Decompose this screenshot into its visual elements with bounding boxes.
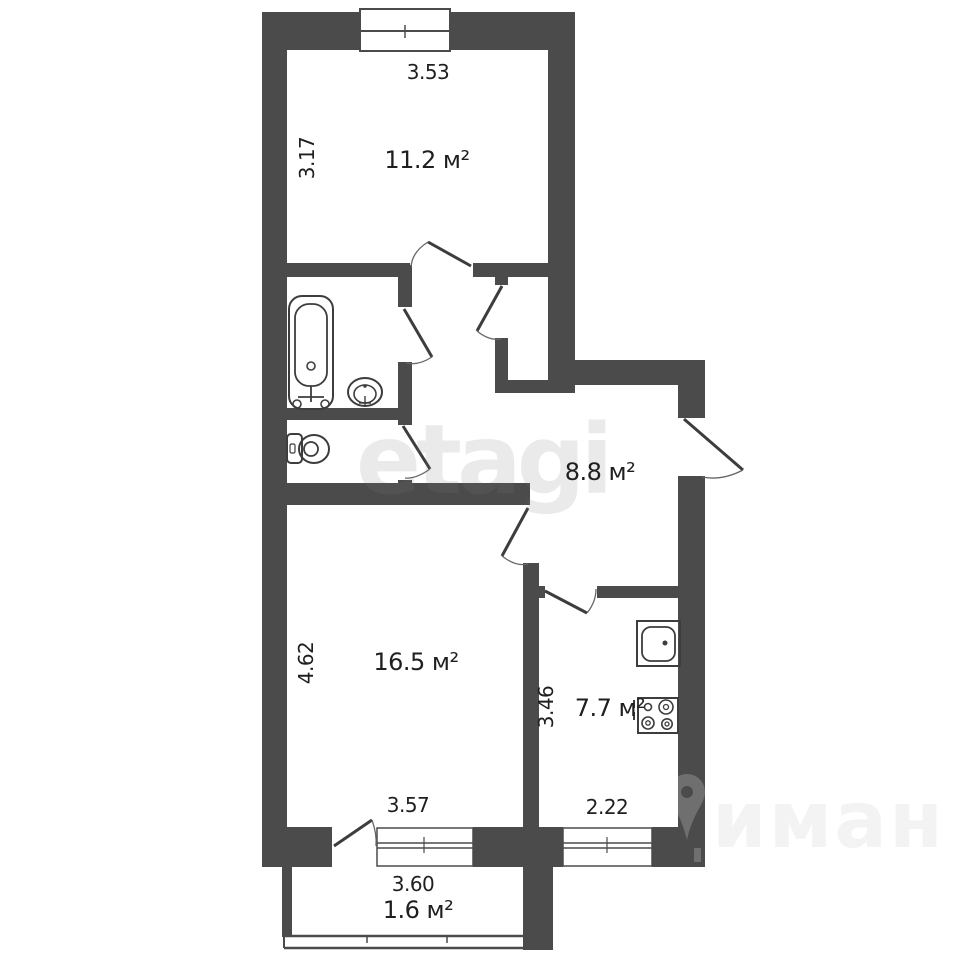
door-wc <box>403 426 430 478</box>
toilet <box>287 434 329 463</box>
dim-balcony-width: 3.60 <box>392 872 435 896</box>
watermark-pin-icon <box>669 774 705 862</box>
area-kitchen: 7.7 м² <box>575 694 646 722</box>
door-kitchen <box>545 589 596 613</box>
area-living: 16.5 м² <box>373 648 458 676</box>
kitchen-sink <box>637 621 680 666</box>
window-living-room <box>377 828 473 866</box>
window-top-room <box>360 9 450 51</box>
dim-living-height: 4.62 <box>294 642 318 685</box>
door-balcony <box>334 820 376 846</box>
dim-toproom-height: 3.17 <box>295 137 319 180</box>
bathtub <box>289 296 333 409</box>
dim-living-width: 3.57 <box>387 793 430 817</box>
floor-plan: etagi иман 3.53 3.17 11.2 м² 8.8 м² 4.62… <box>0 0 960 960</box>
area-hallway: 8.8 м² <box>565 458 636 486</box>
door-living-room <box>502 508 528 565</box>
dim-toproom-width: 3.53 <box>407 60 450 84</box>
plan-linework <box>0 0 960 960</box>
bath-sink <box>348 378 382 406</box>
entrance-door <box>684 419 743 478</box>
area-balcony: 1.6 м² <box>383 896 454 924</box>
area-toproom: 11.2 м² <box>384 146 469 174</box>
door-closet <box>477 286 502 339</box>
dim-kitchen-height: 3.46 <box>534 686 558 729</box>
door-bathroom <box>404 309 432 364</box>
dim-kitchen-width: 2.22 <box>586 795 629 819</box>
balcony-glazing <box>284 936 553 948</box>
window-kitchen <box>563 828 652 866</box>
door-top-room <box>411 242 471 267</box>
